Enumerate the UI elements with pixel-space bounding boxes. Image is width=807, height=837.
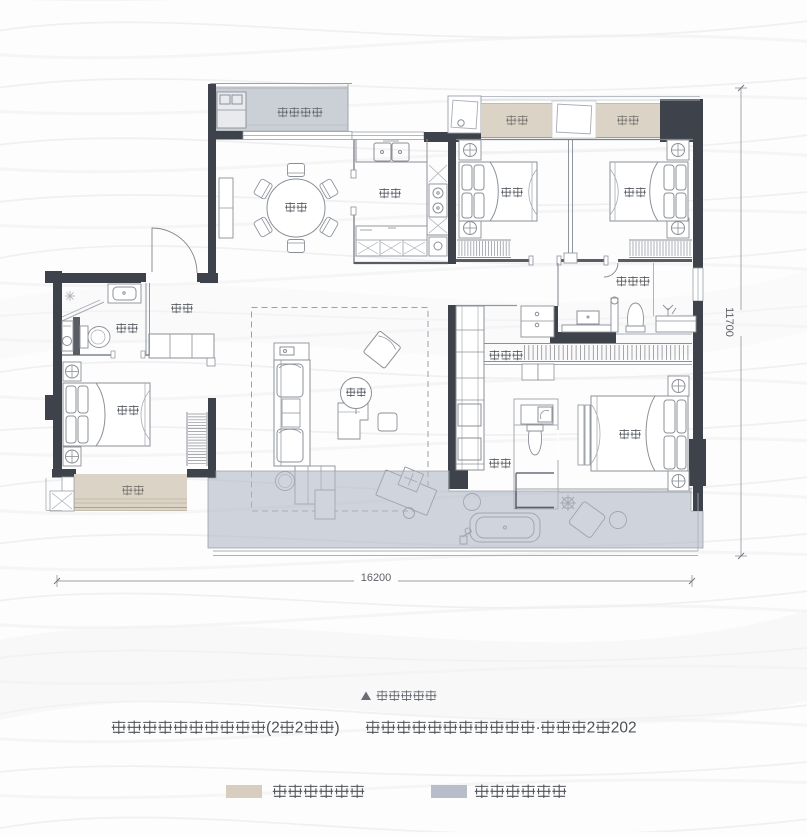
svg-text:(2: (2 — [266, 720, 280, 737]
svg-text:16200: 16200 — [361, 572, 392, 584]
svg-text:202: 202 — [611, 720, 637, 737]
svg-text:): ) — [335, 720, 340, 737]
svg-text:2: 2 — [587, 720, 596, 737]
svg-text:11700: 11700 — [723, 307, 735, 337]
svg-text:·: · — [536, 720, 541, 737]
svg-text:2: 2 — [295, 720, 304, 737]
